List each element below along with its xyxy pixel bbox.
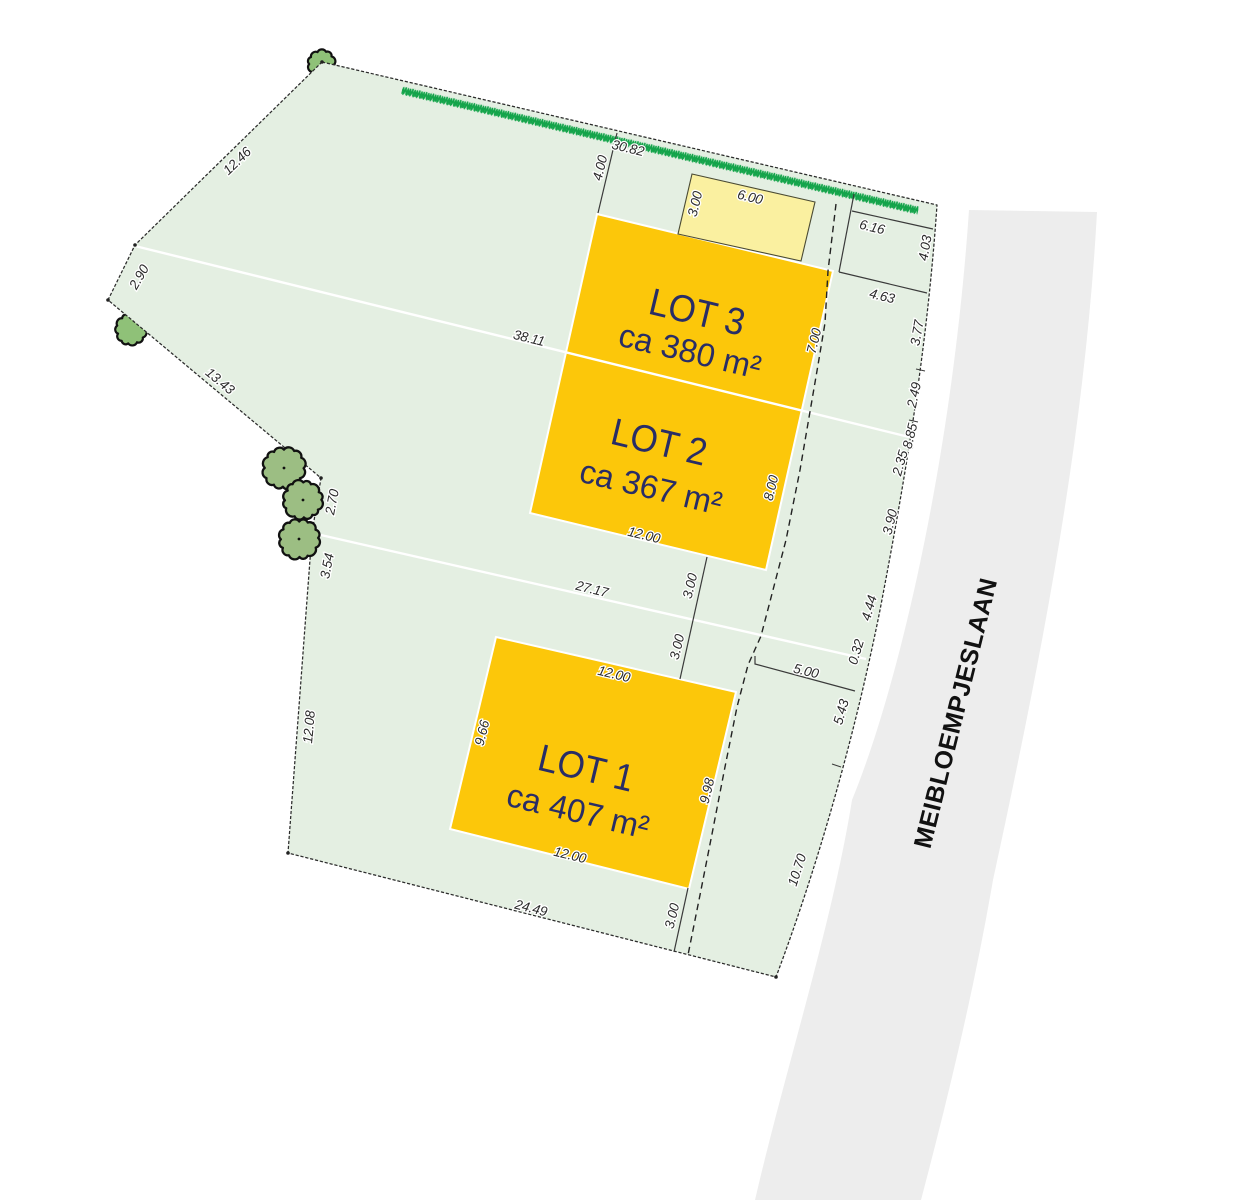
svg-text:12.08: 12.08 (300, 709, 318, 744)
